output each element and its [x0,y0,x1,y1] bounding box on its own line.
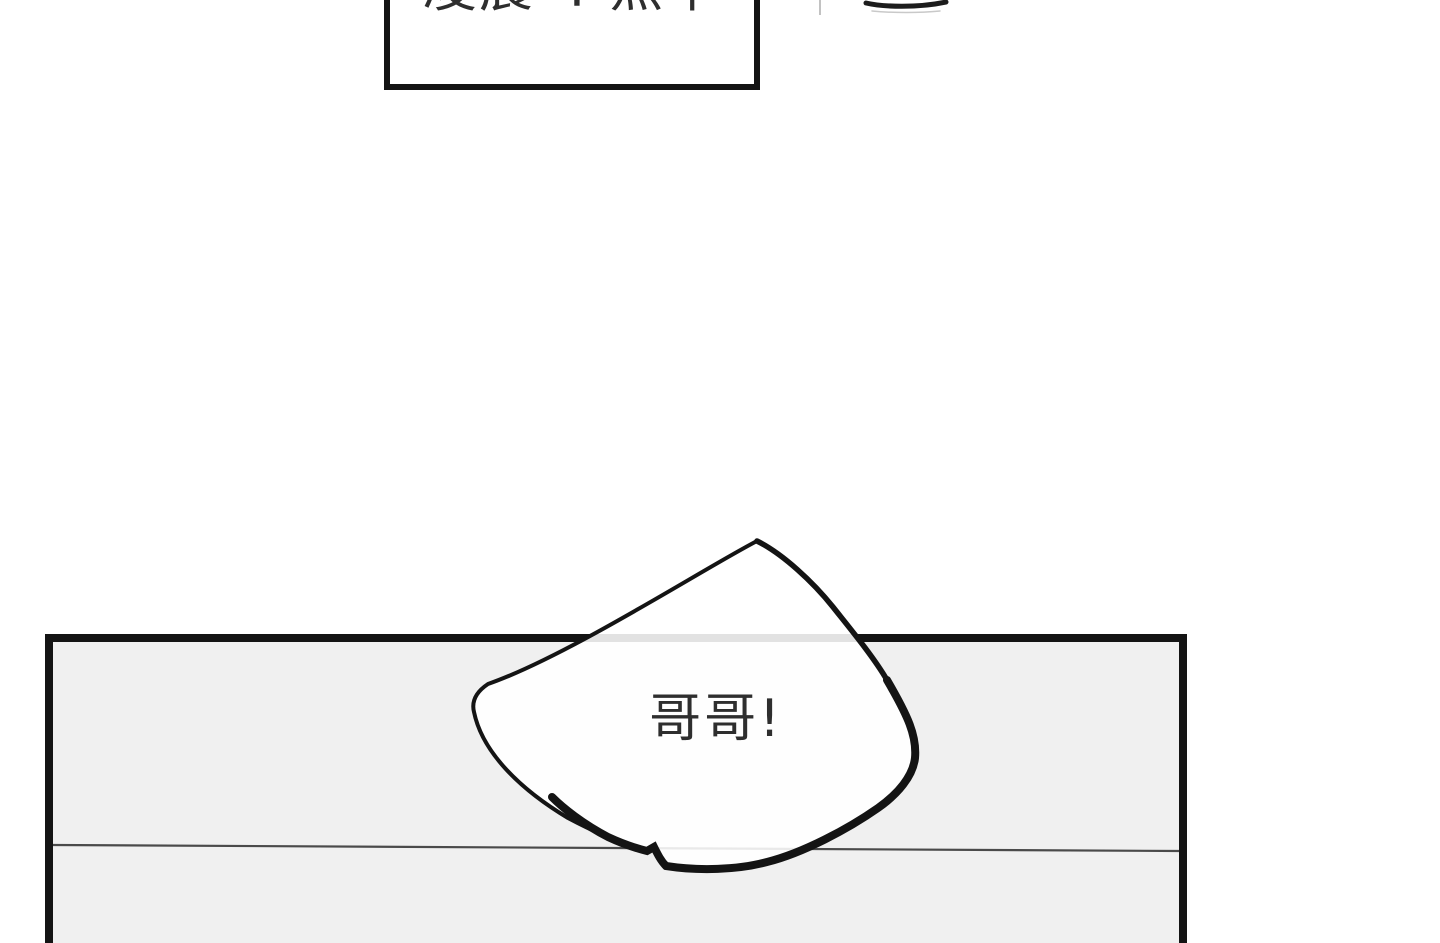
speech-bubble-text: 哥哥! [596,692,836,746]
hair-stroke-faint [872,11,940,13]
stray-line-icon [819,0,821,15]
caption-box: 凌晨 4 点半 [384,0,760,90]
hair-stroke-dark [866,2,946,6]
caption-text: 凌晨 4 点半 [390,0,754,16]
hair-stroke-icon [858,0,953,16]
comic-page: 凌晨 4 点半 哥哥! [0,0,1440,943]
